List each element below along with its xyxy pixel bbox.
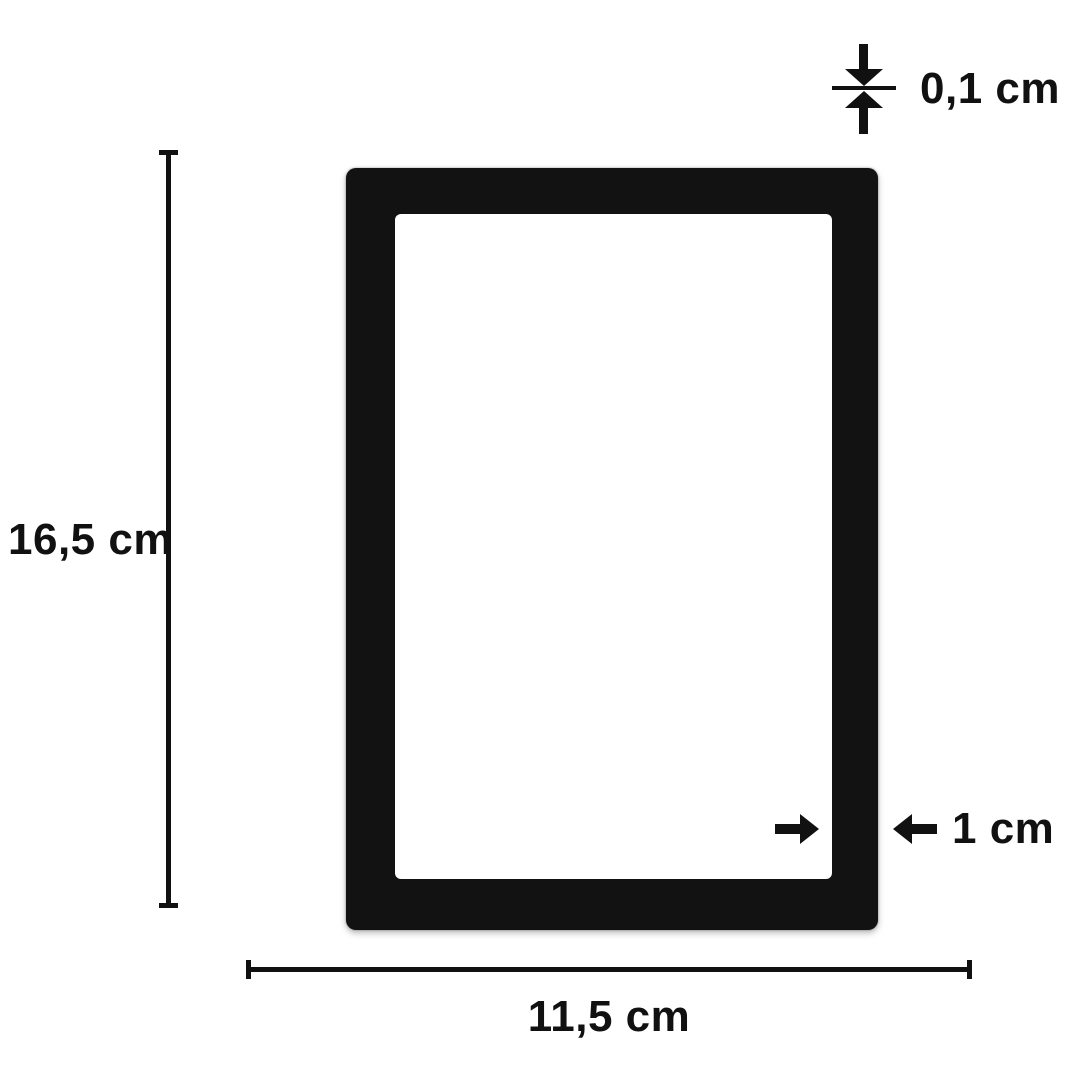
height-dimension-cap-top [159,150,178,155]
height-dimension-cap-bottom [159,903,178,908]
width-dimension-cap-right [967,960,972,979]
width-dimension-line [248,967,970,972]
frame-window [395,214,832,879]
width-dimension-cap-left [246,960,251,979]
border-arrow-left-icon [911,824,937,834]
thickness-arrow-down-icon [859,44,868,70]
thickness-dimension-label: 0,1 cm [920,67,1060,111]
border-width-dimension-label: 1 cm [952,807,1054,851]
thickness-arrow-down-head-icon [845,69,883,86]
thickness-reference-line [832,86,896,90]
thickness-arrow-up-icon [859,108,868,134]
height-dimension-label: 16,5 cm [8,518,173,562]
width-dimension-label: 11,5 cm [248,995,970,1039]
product-frame [346,168,878,930]
border-arrow-left-head-icon [893,814,912,844]
border-arrow-right-head-icon [800,814,819,844]
thickness-arrow-up-head-icon [845,91,883,108]
dimension-diagram: 16,5 cm 11,5 cm 0,1 cm 1 cm [0,0,1080,1080]
border-arrow-right-icon [775,824,801,834]
